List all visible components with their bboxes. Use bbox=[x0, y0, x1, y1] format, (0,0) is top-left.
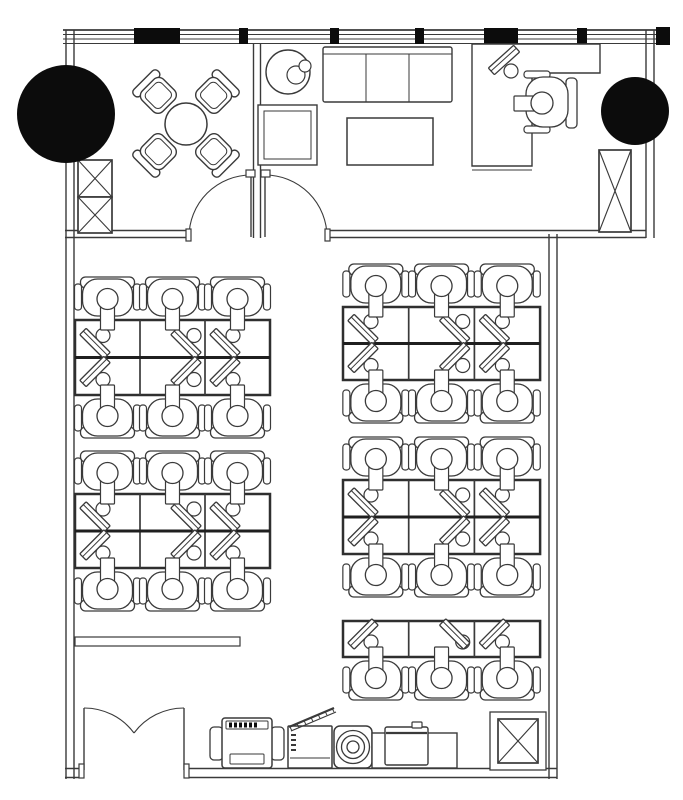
copier-button bbox=[249, 723, 252, 728]
person-head bbox=[431, 391, 452, 412]
door-jamb bbox=[184, 764, 189, 778]
chair-armrest bbox=[533, 390, 540, 416]
chair-armrest bbox=[402, 564, 409, 590]
chair-armrest bbox=[75, 458, 82, 484]
storage-cabinet-left-upper bbox=[78, 160, 112, 197]
chair-armrest bbox=[140, 405, 147, 431]
chair-armrest bbox=[75, 578, 82, 604]
door-swing-arc bbox=[189, 175, 251, 237]
person-head bbox=[162, 406, 183, 427]
chair-armrest bbox=[75, 405, 82, 431]
copier-printer bbox=[210, 718, 284, 768]
door-jamb bbox=[79, 764, 84, 778]
shredder-label-marks bbox=[291, 739, 296, 741]
shredder-body bbox=[288, 726, 332, 768]
person-head bbox=[162, 289, 183, 310]
wall-segment bbox=[577, 28, 587, 44]
lounge-area bbox=[258, 47, 452, 165]
person-head bbox=[431, 668, 452, 689]
wall-segment bbox=[656, 27, 670, 45]
chair-armrest bbox=[264, 405, 271, 431]
person-head bbox=[531, 92, 553, 114]
chair-armrest bbox=[343, 390, 350, 416]
shredder-label-marks bbox=[291, 734, 296, 736]
kettle-icon bbox=[299, 60, 311, 72]
person-head bbox=[431, 276, 452, 297]
person-head bbox=[227, 579, 248, 600]
chair-armrest bbox=[468, 271, 475, 297]
shredder-label-marks bbox=[291, 749, 296, 751]
door-swing-arc bbox=[134, 708, 184, 733]
copier-button bbox=[229, 723, 232, 728]
chair-armrest bbox=[468, 390, 475, 416]
person-head bbox=[227, 289, 248, 310]
person-head bbox=[497, 391, 518, 412]
person-head bbox=[227, 463, 248, 484]
person-head bbox=[162, 463, 183, 484]
chair-armrest bbox=[205, 458, 212, 484]
dispenser-ring bbox=[347, 741, 359, 753]
coffee-table bbox=[347, 118, 433, 165]
low-cabinet bbox=[75, 637, 240, 646]
chair-armrest bbox=[468, 667, 475, 693]
water-dispenser bbox=[334, 726, 372, 768]
person-head bbox=[227, 406, 248, 427]
chair-armrest bbox=[533, 271, 540, 297]
service-box bbox=[490, 712, 546, 770]
wall-segment bbox=[330, 28, 339, 44]
appliance-knob bbox=[412, 722, 422, 728]
reception-door bbox=[186, 170, 255, 241]
person-head bbox=[97, 463, 118, 484]
wall-segment bbox=[134, 28, 180, 44]
person-head bbox=[497, 668, 518, 689]
chair-armrest bbox=[474, 444, 481, 470]
copier-side-tray bbox=[271, 727, 284, 760]
chair-armrest bbox=[140, 284, 147, 310]
private-office bbox=[472, 44, 631, 232]
open-office-desks bbox=[75, 264, 541, 700]
person-head bbox=[365, 391, 386, 412]
chair-armrest bbox=[402, 444, 409, 470]
door-jamb bbox=[261, 170, 270, 177]
chair-armrest bbox=[75, 284, 82, 310]
kitchenette-counter bbox=[372, 722, 457, 768]
chair-armrest bbox=[264, 284, 271, 310]
column-top-right bbox=[601, 77, 669, 145]
shredder-label-marks bbox=[291, 744, 296, 746]
door-jamb bbox=[186, 229, 191, 241]
wall-segment bbox=[415, 28, 424, 44]
desk-bank-left-bottom bbox=[75, 451, 271, 611]
chair-armrest bbox=[402, 390, 409, 416]
monitor-stand bbox=[504, 64, 518, 78]
chair-armrest bbox=[474, 271, 481, 297]
copier-button bbox=[234, 723, 237, 728]
chair-armrest bbox=[343, 271, 350, 297]
copier-output-tray bbox=[230, 754, 264, 764]
storage-cabinet-office bbox=[599, 150, 631, 232]
chair-armrest bbox=[474, 390, 481, 416]
wall-segment bbox=[484, 28, 518, 44]
door-jamb bbox=[325, 229, 330, 241]
person-head bbox=[431, 449, 452, 470]
person-head bbox=[365, 668, 386, 689]
desk-bank-left-top bbox=[75, 277, 271, 438]
door-swing-arc bbox=[84, 708, 134, 733]
floor-plan-page bbox=[0, 0, 683, 800]
person-head bbox=[497, 276, 518, 297]
person-head bbox=[97, 579, 118, 600]
desk-bank-right-middle bbox=[343, 437, 540, 597]
chair-armrest bbox=[140, 578, 147, 604]
door-jamb bbox=[246, 170, 255, 177]
entry-door-right-leaf bbox=[134, 708, 189, 778]
storage-cabinet-left-lower bbox=[78, 197, 112, 233]
chair-armrest bbox=[402, 271, 409, 297]
column-top-left bbox=[17, 65, 115, 163]
chair-armrest bbox=[533, 667, 540, 693]
chair-armrest bbox=[343, 564, 350, 590]
chair-armrest bbox=[533, 444, 540, 470]
copier-button bbox=[244, 723, 247, 728]
person-head bbox=[497, 565, 518, 586]
chair-armrest bbox=[409, 271, 416, 297]
chair-armrest bbox=[343, 444, 350, 470]
copier-side-tray bbox=[210, 727, 223, 760]
chair-armrest bbox=[468, 444, 475, 470]
copier-button bbox=[254, 723, 257, 728]
shredder bbox=[288, 708, 336, 768]
person-head bbox=[365, 276, 386, 297]
chair-armrest bbox=[205, 578, 212, 604]
chair-armrest bbox=[264, 458, 271, 484]
lounge-door bbox=[261, 170, 330, 241]
entry-door-left-leaf bbox=[79, 708, 134, 778]
desk-bank-right-bottom bbox=[343, 619, 540, 700]
person-head bbox=[162, 579, 183, 600]
chair-armrest bbox=[533, 564, 540, 590]
round-meeting-table bbox=[165, 103, 207, 145]
chair-armrest bbox=[402, 667, 409, 693]
chair-armrest bbox=[140, 458, 147, 484]
chair-armrest bbox=[474, 667, 481, 693]
three-seat-sofa bbox=[323, 47, 452, 102]
chair-armrest bbox=[205, 284, 212, 310]
square-table-inner bbox=[264, 111, 311, 159]
wall-segment bbox=[239, 28, 248, 44]
chair-armrest bbox=[409, 564, 416, 590]
copier-button bbox=[239, 723, 242, 728]
desk-bank-right-top bbox=[343, 264, 540, 423]
chair-armrest bbox=[474, 564, 481, 590]
door-swing-arc bbox=[265, 175, 327, 237]
chair-armrest bbox=[409, 444, 416, 470]
chair-armrest bbox=[409, 390, 416, 416]
person-head bbox=[431, 565, 452, 586]
chair-armrest bbox=[468, 564, 475, 590]
person-head bbox=[97, 289, 118, 310]
person-head bbox=[497, 449, 518, 470]
chair-armrest bbox=[205, 405, 212, 431]
floor-plan-drawing bbox=[0, 0, 683, 800]
person-head bbox=[365, 565, 386, 586]
chair-armrest bbox=[343, 667, 350, 693]
chair-armrest bbox=[409, 667, 416, 693]
person-head bbox=[97, 406, 118, 427]
person-head bbox=[365, 449, 386, 470]
chair-armrest bbox=[264, 578, 271, 604]
